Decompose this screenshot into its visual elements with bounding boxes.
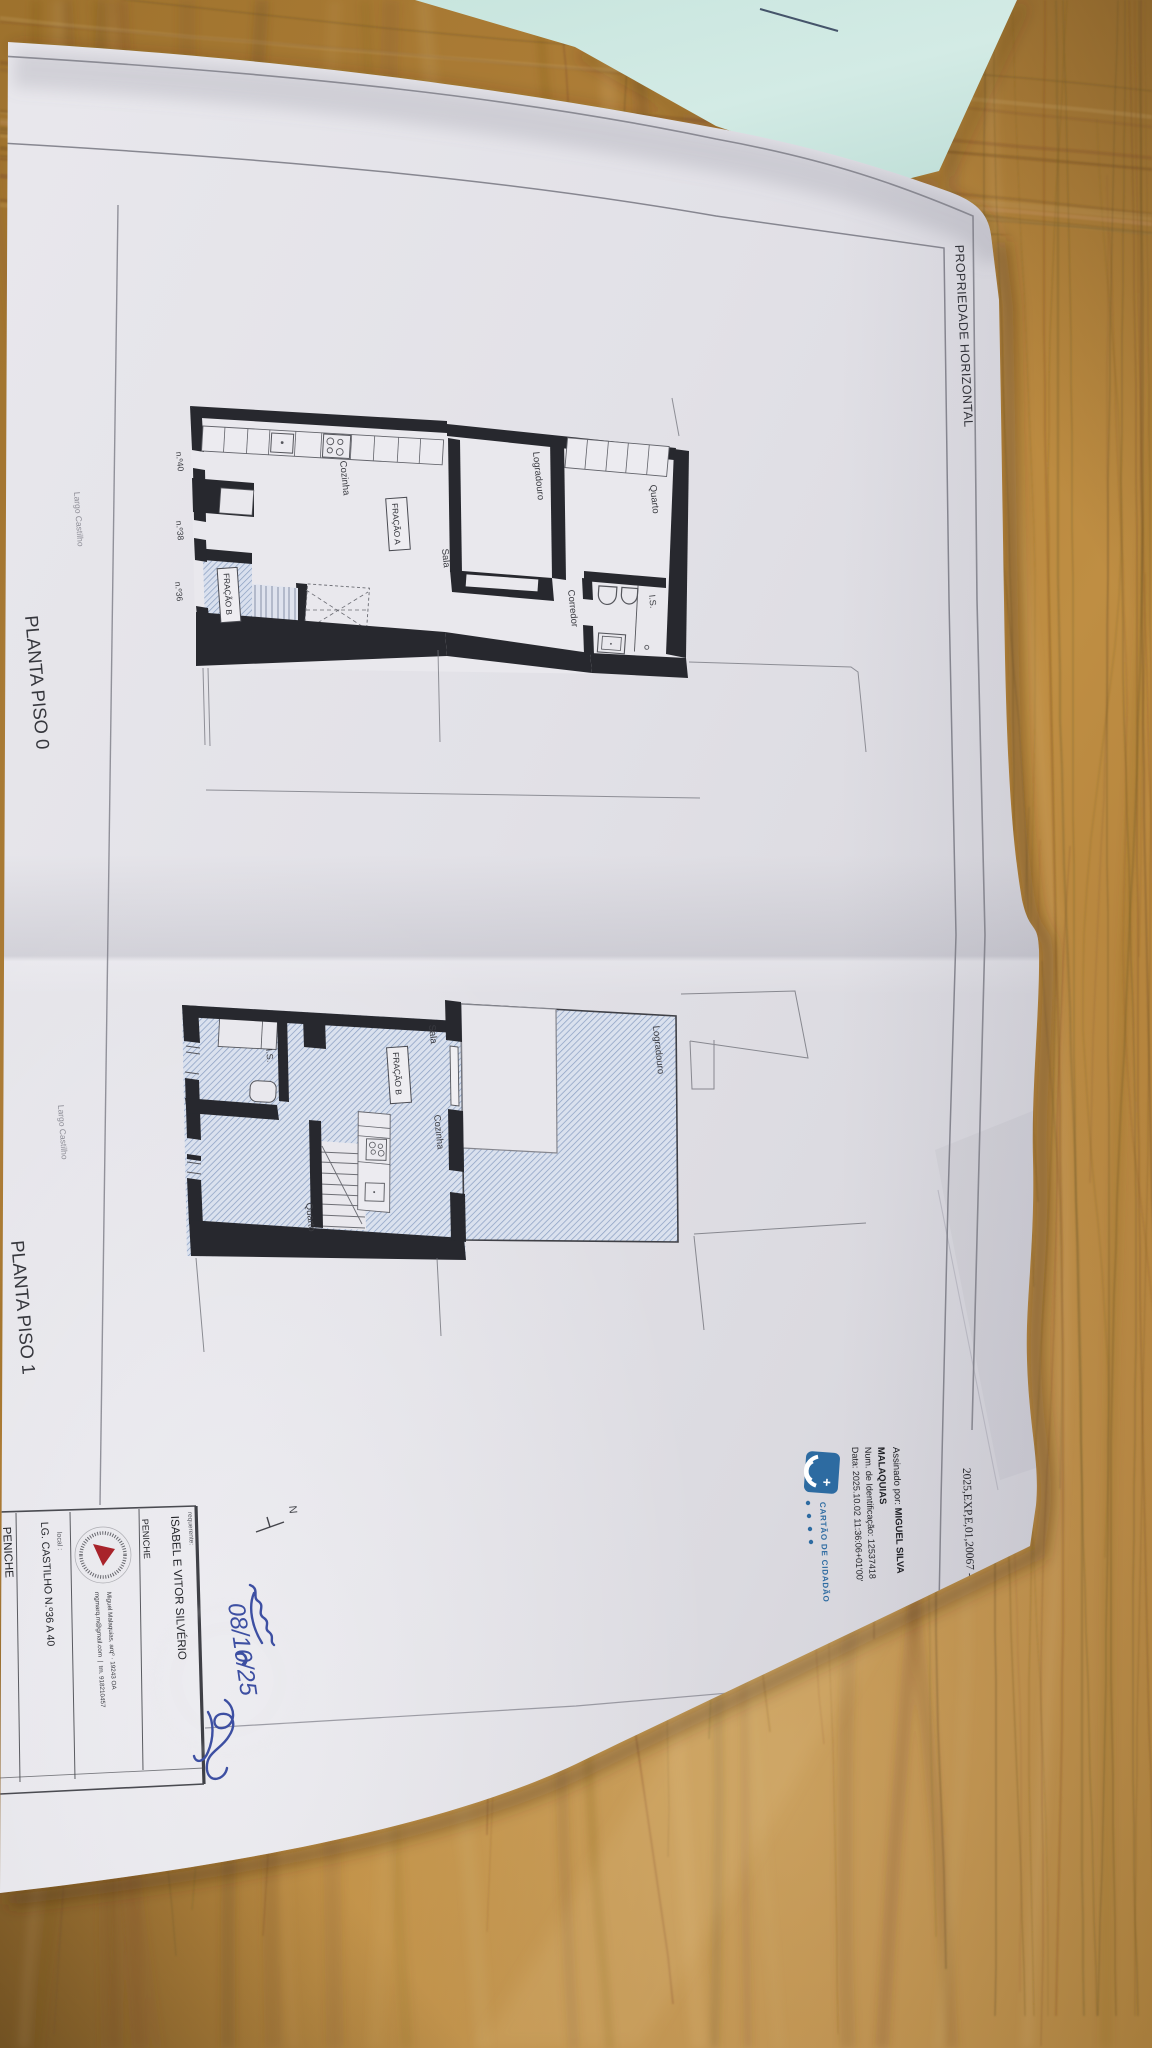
svg-text:I.S.: I.S.: [264, 1048, 275, 1062]
svg-text:MALAQUIAS: MALAQUIAS: [875, 1447, 888, 1505]
svg-text:local :: local :: [55, 1532, 63, 1551]
svg-text:Sala: Sala: [439, 548, 452, 569]
svg-text:n.º38: n.º38: [174, 520, 186, 541]
svg-text:I.S.: I.S.: [647, 594, 658, 608]
svg-text:N: N: [286, 1505, 299, 1514]
svg-text:n.º40: n.º40: [174, 451, 186, 472]
svg-text:Sala: Sala: [426, 1024, 439, 1045]
svg-text:n.º36: n.º36: [173, 581, 185, 602]
svg-text:PENICHE: PENICHE: [140, 1519, 152, 1559]
